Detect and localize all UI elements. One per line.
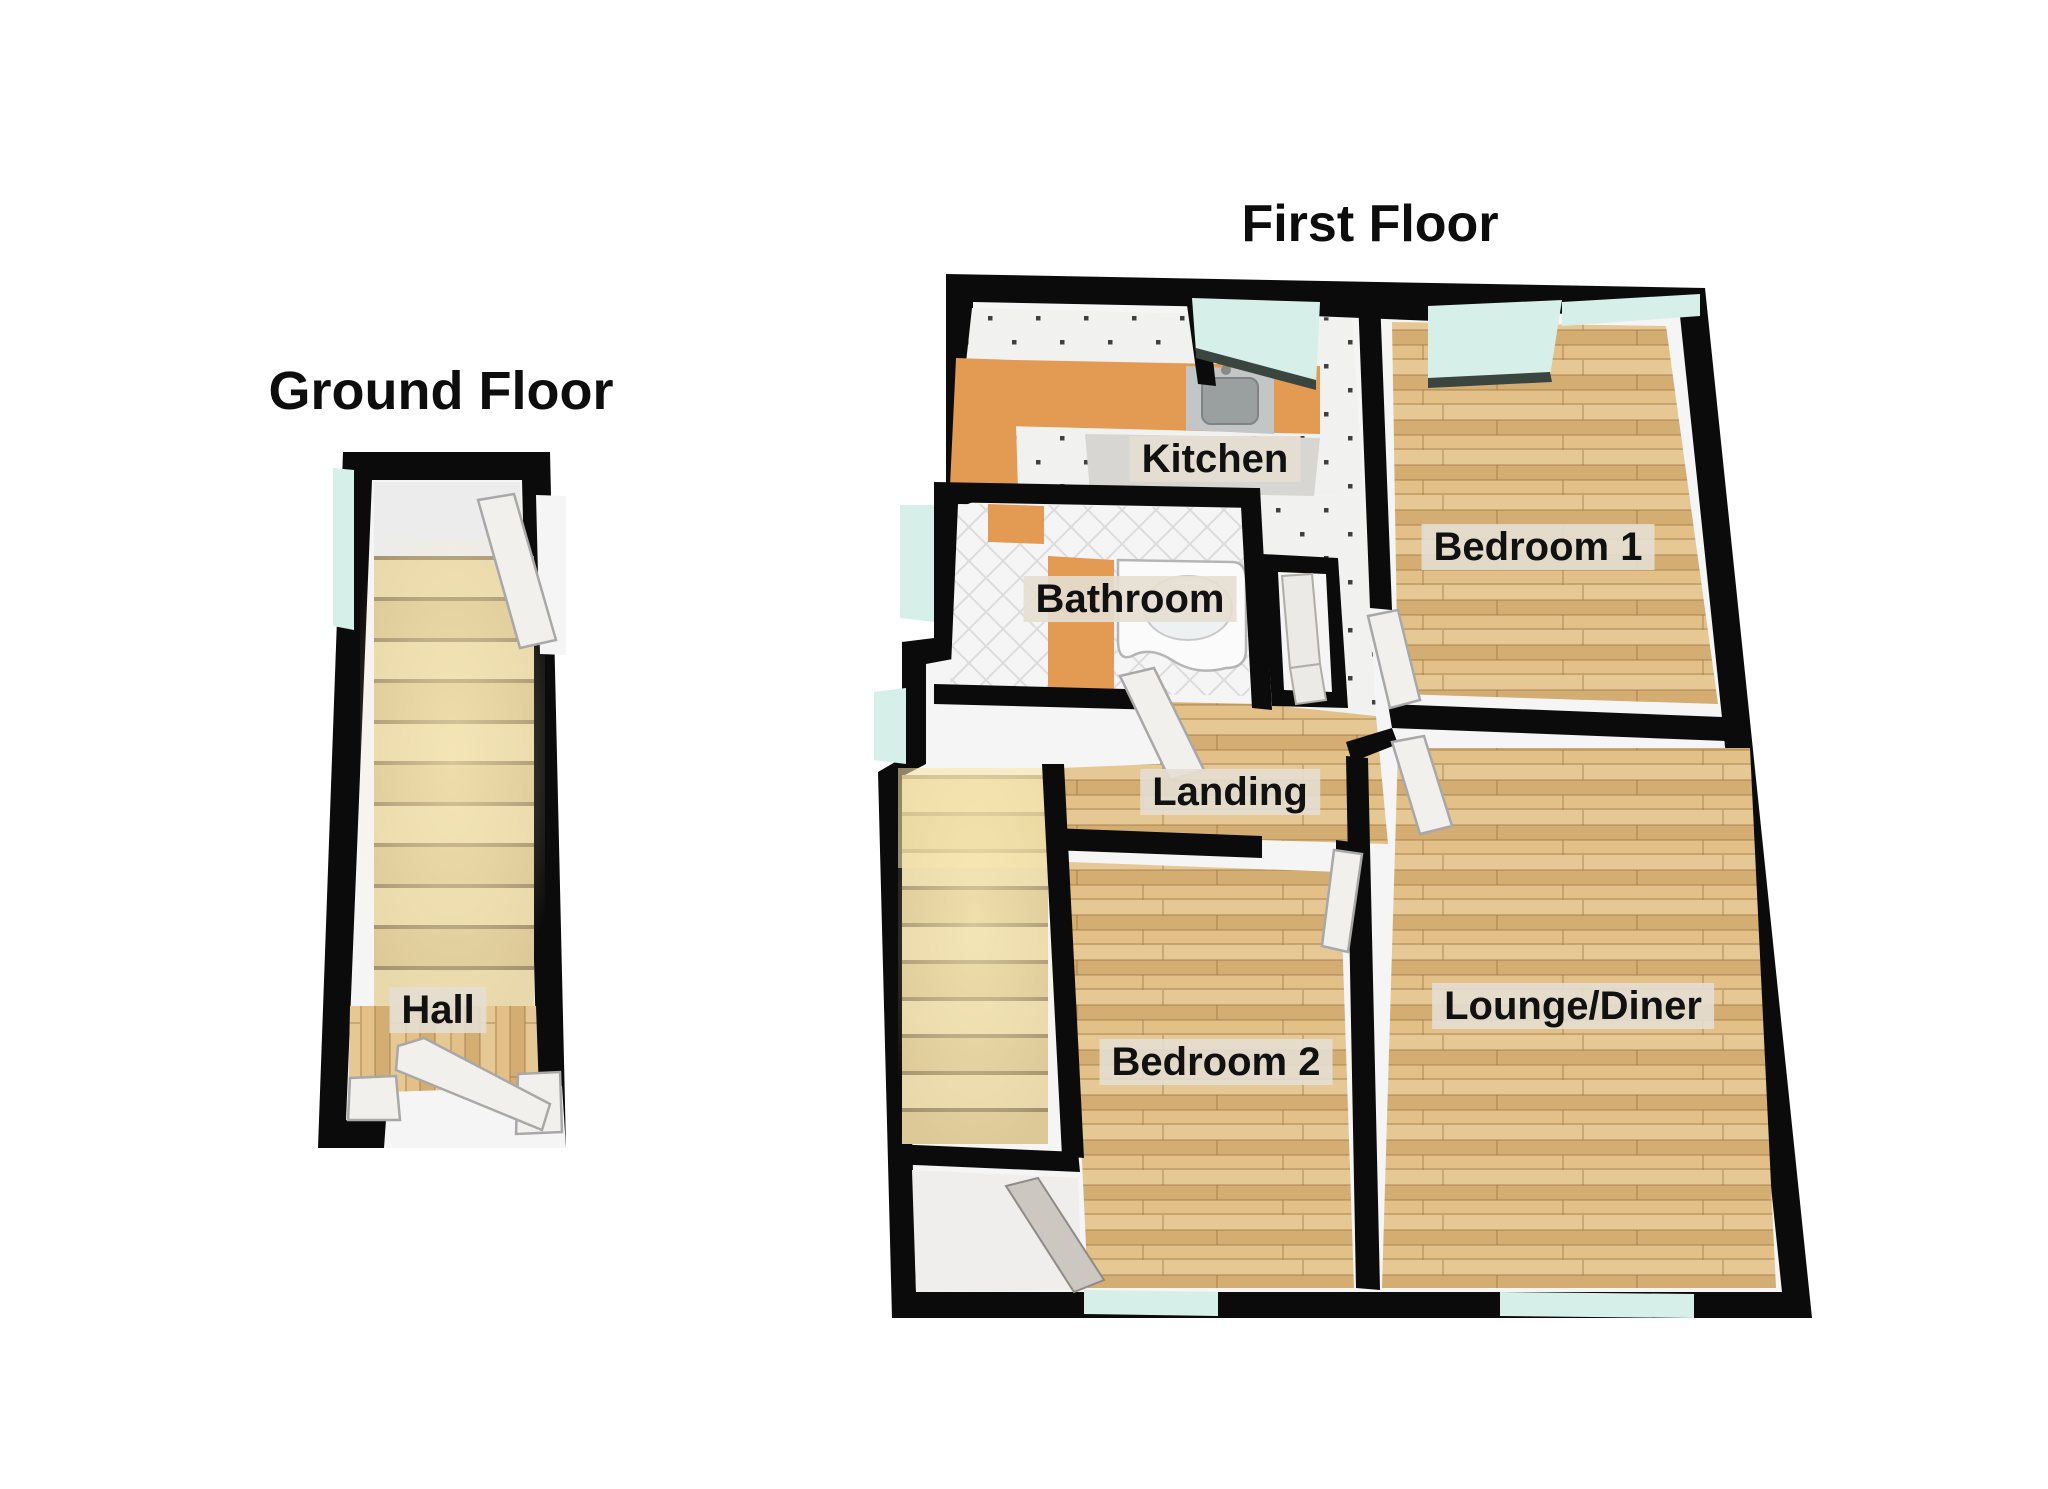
- bedroom2-label: Bedroom 2: [1100, 1039, 1333, 1085]
- ground-floor-title: Ground Floor: [269, 360, 614, 422]
- hall-label: Hall: [389, 987, 486, 1033]
- ground-floor-plan: [300, 420, 640, 1180]
- ground-left-window: [333, 468, 354, 630]
- bathroom-shelf: [988, 504, 1044, 544]
- bedroom1-label: Bedroom 1: [1422, 524, 1655, 570]
- first-floor-title: First Floor: [1241, 194, 1498, 254]
- kitchen-label: Kitchen: [1130, 436, 1301, 482]
- floorplan-page: Ground Floor First Floor Hall Kitchen Ba…: [0, 0, 2048, 1489]
- bedroom1-window: [1428, 300, 1562, 382]
- bathroom-left-window: [900, 505, 934, 622]
- lounge-diner-label: Lounge/Diner: [1432, 983, 1714, 1029]
- front-door-jamb-left: [348, 1076, 400, 1120]
- bathroom-label: Bathroom: [1024, 576, 1237, 622]
- first-floor-plan: [850, 250, 1840, 1340]
- bedroom2-bottom-window: [1084, 1290, 1218, 1316]
- landing-left-window: [874, 688, 906, 764]
- lounge-bottom-window: [1500, 1292, 1694, 1318]
- closet-door-lower: [1290, 664, 1326, 704]
- first-staircase: [898, 768, 1052, 1148]
- landing-label: Landing: [1140, 769, 1320, 815]
